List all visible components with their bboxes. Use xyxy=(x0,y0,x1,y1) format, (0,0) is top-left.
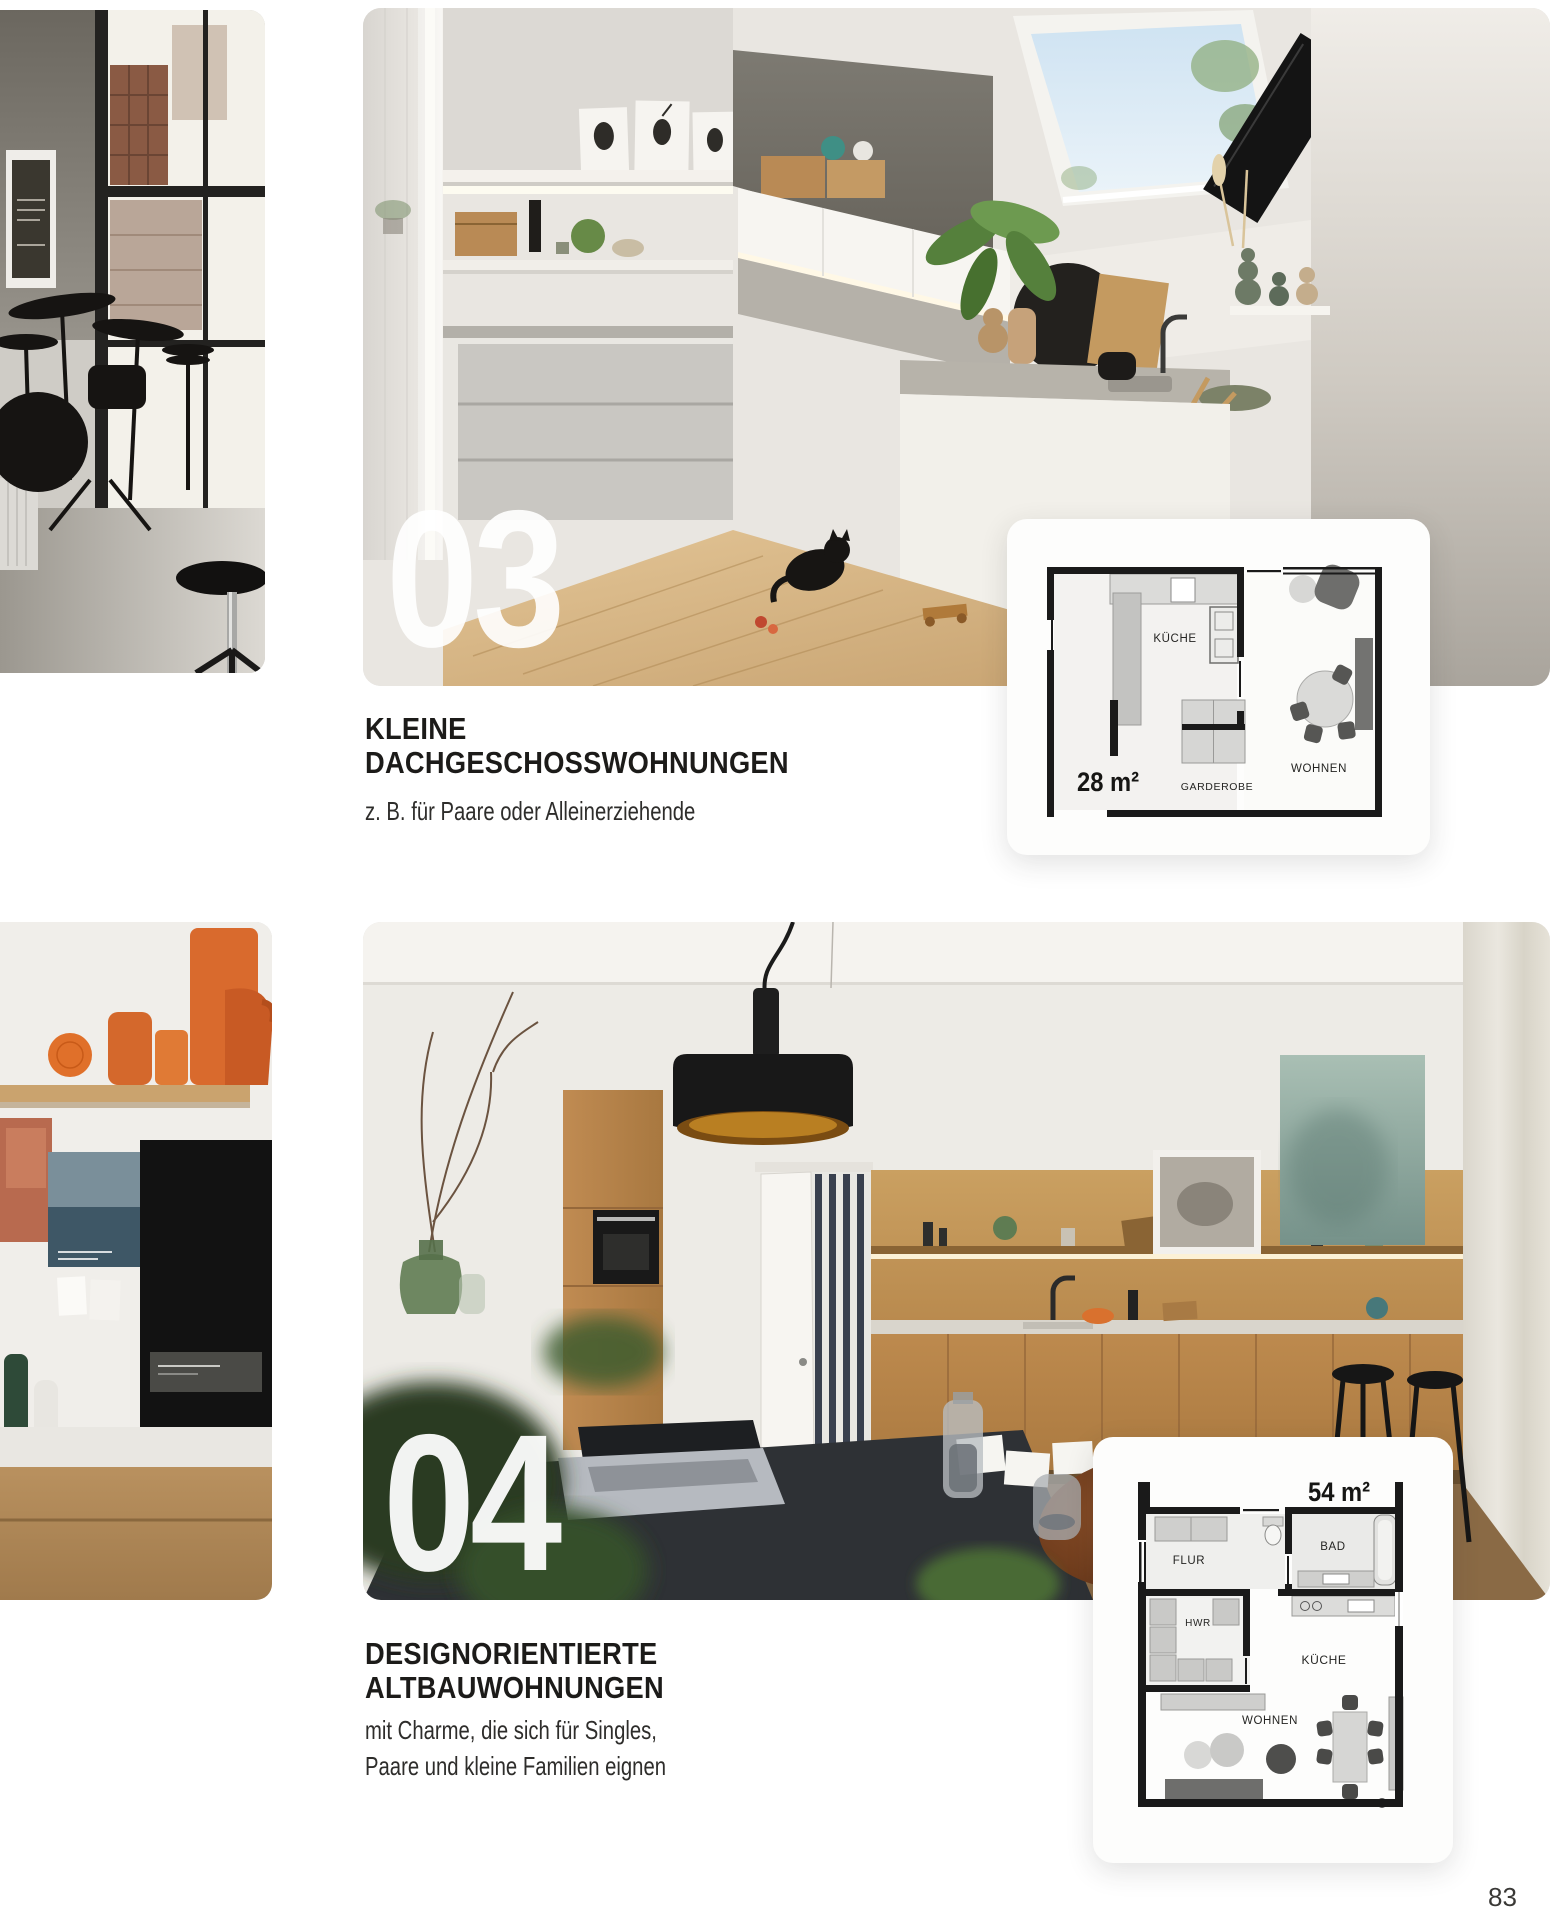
section-04-heading: DESIGNORIENTIERTE ALTBAUWOHNUNGEN xyxy=(365,1637,705,1705)
side-photo-drum-loft xyxy=(0,10,265,673)
section-03-subtitle: z. B. für Paare oder Alleinerziehende xyxy=(365,793,788,829)
room-label-bad: BAD xyxy=(1293,1541,1373,1553)
room-label-wohnen: WOHNEN xyxy=(1269,763,1369,775)
desk-top xyxy=(0,1427,272,1467)
wood-sideboard xyxy=(0,1467,272,1600)
drum-loft-art xyxy=(0,10,265,673)
section-04-title-line2: ALTBAUWOHNUNGEN xyxy=(365,1671,705,1705)
oak-tall-cabinet xyxy=(563,1090,663,1450)
floorplan-card-28: 28 m² KÜCHE WOHNEN GARDEROBE xyxy=(1007,519,1430,855)
page-number: 83 xyxy=(1488,1882,1517,1913)
tv-screen xyxy=(140,1140,272,1427)
catalog-page: 03 xyxy=(0,0,1550,1916)
plan-area-label: 28 m² xyxy=(1077,767,1148,798)
floorplan-card-54: 54 m² FLUR BAD HWR KÜCHE WOHNEN xyxy=(1093,1437,1453,1863)
floorplan-28-drawing xyxy=(1007,519,1430,855)
tumbler xyxy=(1033,1474,1081,1540)
carafe xyxy=(943,1392,983,1498)
curtain xyxy=(1463,922,1550,1600)
section-03-title-line2: DACHGESCHOSSWOHNUNGEN xyxy=(365,746,847,780)
wall-poster xyxy=(6,150,56,288)
section-04-subtitle: mit Charme, die sich für Singles, Paare … xyxy=(365,1712,751,1784)
plan-area-label: 54 m² xyxy=(1279,1477,1379,1508)
loft-window xyxy=(95,10,265,515)
side-photo-vases-tv xyxy=(0,922,272,1600)
orange-bowl xyxy=(1082,1308,1114,1324)
wood-shelf xyxy=(0,1085,250,1102)
section-04-subtitle-line1: mit Charme, die sich für Singles, xyxy=(365,1712,751,1748)
room-label-kueche: KÜCHE xyxy=(1274,1653,1374,1667)
room-label-garderobe: GARDEROBE xyxy=(1165,781,1269,793)
room-label-hwr: HWR xyxy=(1158,1618,1238,1629)
section-04-title-line1: DESIGNORIENTIERTE xyxy=(365,1637,705,1671)
vases-tv-art xyxy=(0,922,272,1600)
room-label-kueche: KÜCHE xyxy=(1125,633,1225,645)
leaning-photo-frame xyxy=(1153,1150,1261,1254)
section-03-number: 03 xyxy=(386,482,591,677)
floorplan-54-drawing xyxy=(1093,1437,1453,1863)
room-label-wohnen: WOHNEN xyxy=(1220,1715,1320,1727)
room-label-flur: FLUR xyxy=(1149,1555,1229,1567)
orange-logo-badge xyxy=(48,1033,92,1077)
section-04-subtitle-line2: Paare und kleine Familien eignen xyxy=(365,1748,751,1784)
section-03-heading: KLEINE DACHGESCHOSSWOHNUNGEN xyxy=(365,712,847,780)
section-04-number: 04 xyxy=(383,1406,588,1600)
section-03-title-line1: KLEINE xyxy=(365,712,847,746)
